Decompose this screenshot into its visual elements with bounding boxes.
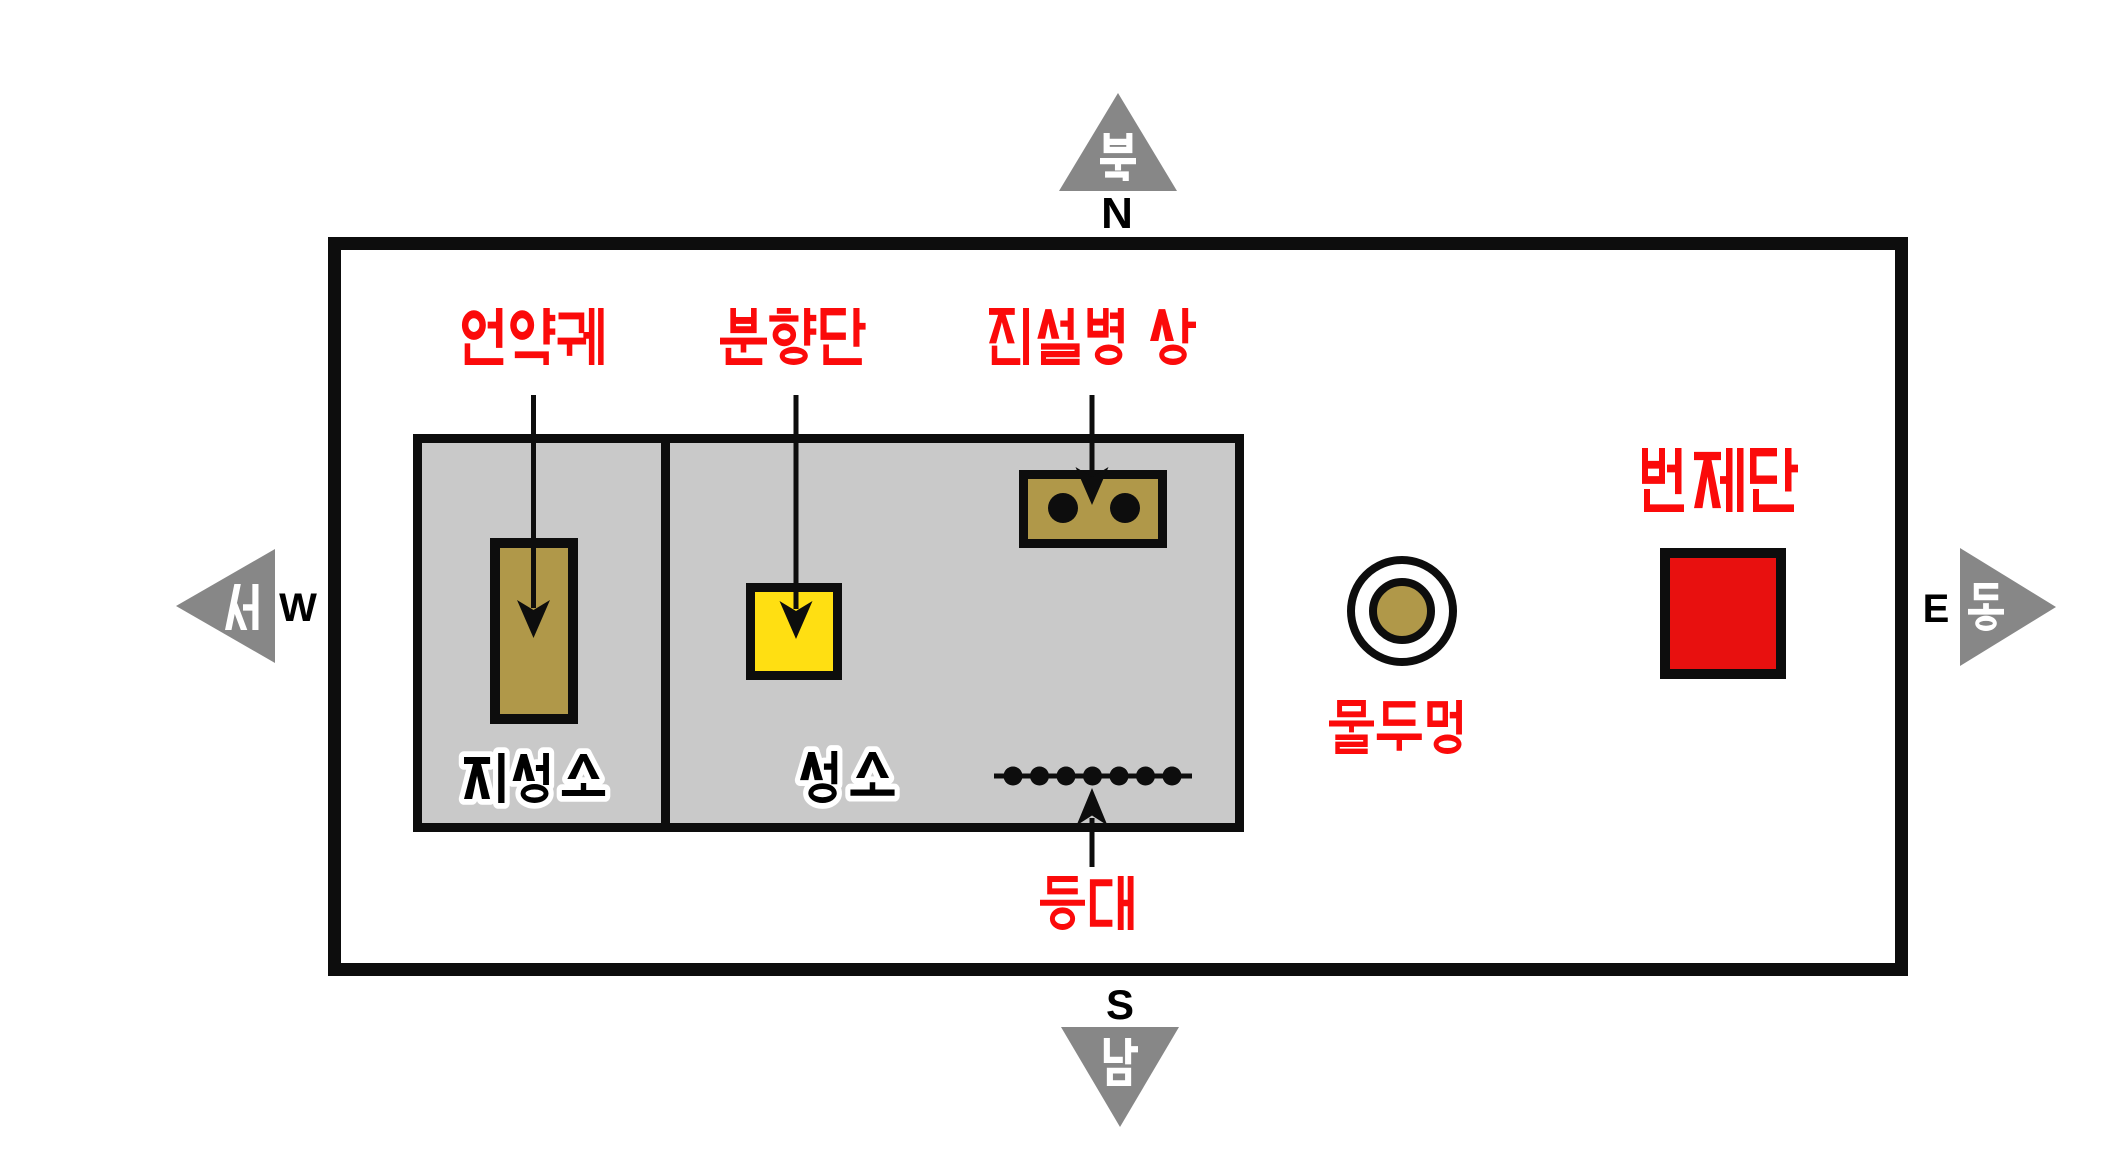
svg-text:W: W [279, 586, 317, 630]
svg-text:S: S [1106, 981, 1134, 1028]
svg-text:N: N [1101, 189, 1133, 238]
svg-text:E: E [1923, 587, 1950, 631]
